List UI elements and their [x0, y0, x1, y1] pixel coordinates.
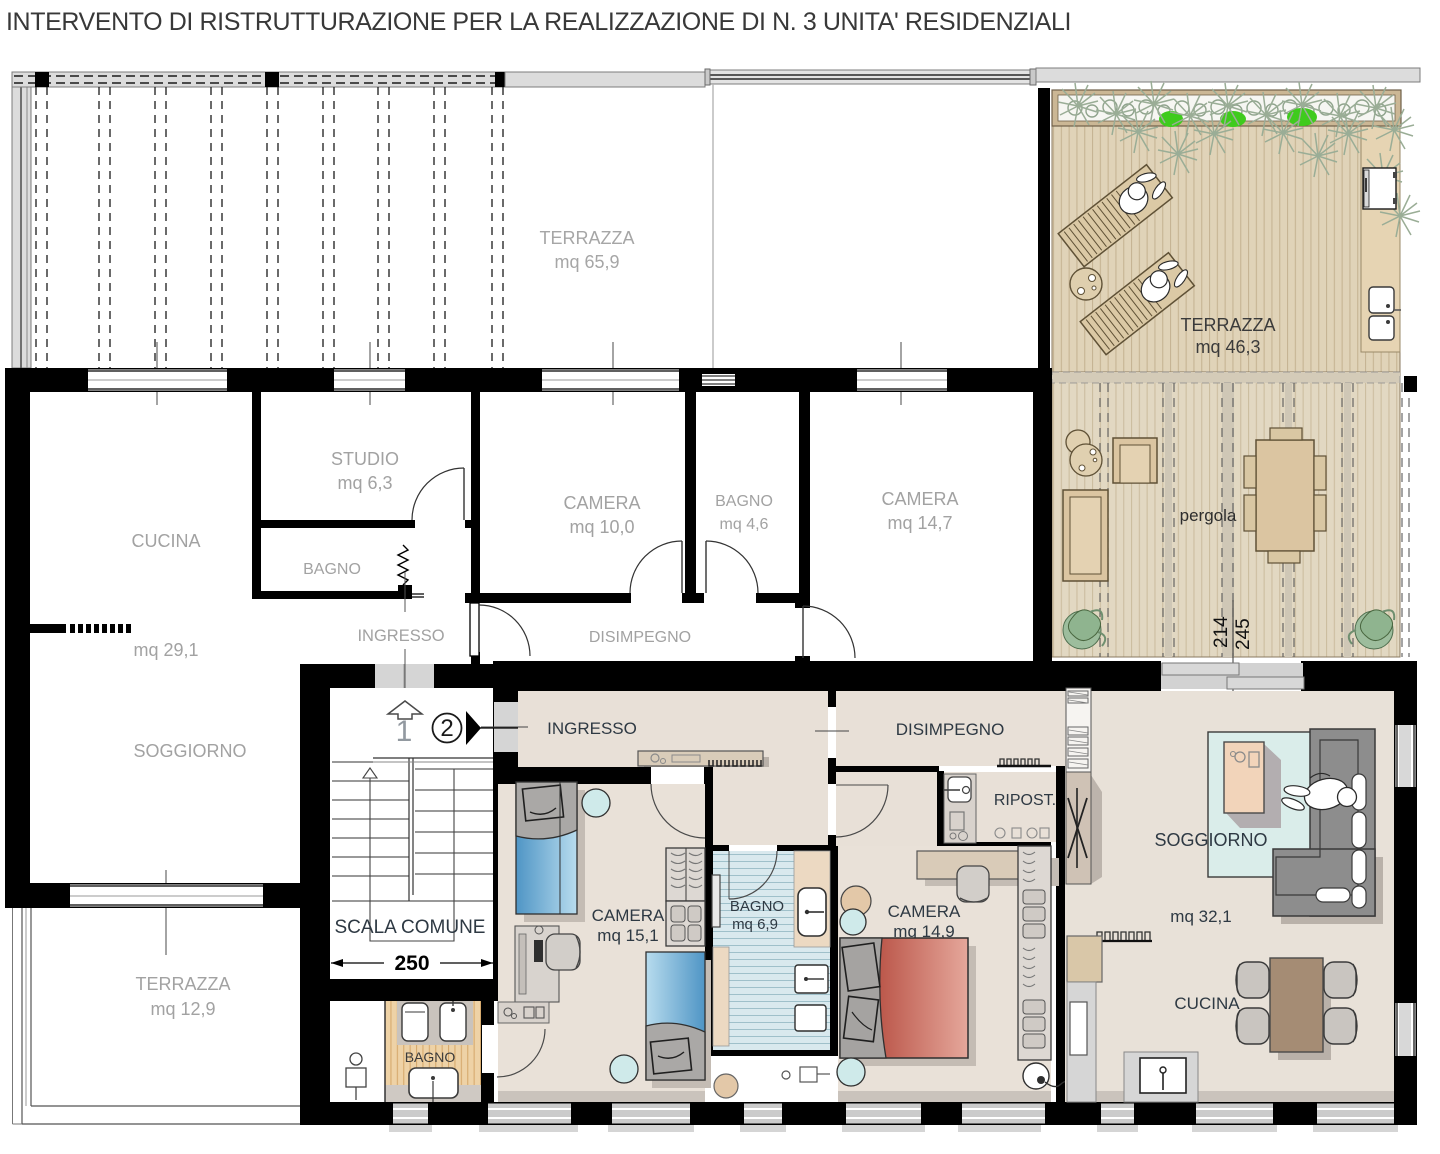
svg-text:BAGNO: BAGNO	[730, 898, 784, 915]
svg-text:mq 15,1: mq 15,1	[597, 926, 658, 945]
svg-text:mq 6,3: mq 6,3	[337, 473, 392, 493]
svg-text:BAGNO: BAGNO	[405, 1049, 456, 1065]
svg-text:2: 2	[440, 715, 453, 742]
svg-text:mq 46,3: mq 46,3	[1195, 337, 1260, 357]
svg-text:CAMERA: CAMERA	[888, 902, 961, 921]
svg-text:INGRESSO: INGRESSO	[357, 627, 444, 645]
svg-text:INTERVENTO DI RISTRUTTURAZIONE: INTERVENTO DI RISTRUTTURAZIONE PER LA RE…	[6, 8, 1071, 36]
svg-text:SOGGIORNO: SOGGIORNO	[1154, 830, 1267, 850]
svg-text:DISIMPEGNO: DISIMPEGNO	[589, 629, 691, 646]
svg-text:250: 250	[394, 952, 429, 975]
svg-text:CAMERA: CAMERA	[592, 906, 665, 925]
svg-text:STUDIO: STUDIO	[331, 449, 399, 469]
svg-text:TERRAZZA: TERRAZZA	[135, 974, 230, 994]
svg-text:245: 245	[1233, 618, 1254, 650]
svg-text:DISIMPEGNO: DISIMPEGNO	[896, 720, 1005, 739]
svg-text:INGRESSO: INGRESSO	[547, 719, 637, 738]
svg-text:SCALA COMUNE: SCALA COMUNE	[335, 917, 486, 938]
svg-text:mq 65,9: mq 65,9	[554, 252, 619, 272]
svg-text:RIPOST.: RIPOST.	[994, 792, 1056, 809]
svg-text:CAMERA: CAMERA	[881, 489, 958, 509]
svg-text:214: 214	[1211, 616, 1232, 648]
svg-text:SOGGIORNO: SOGGIORNO	[133, 741, 246, 761]
svg-text:mq 6,9: mq 6,9	[732, 916, 778, 933]
svg-text:mq 29,1: mq 29,1	[133, 640, 198, 660]
svg-text:BAGNO: BAGNO	[715, 493, 773, 510]
svg-text:pergola: pergola	[1180, 506, 1237, 525]
svg-text:mq 4,6: mq 4,6	[720, 516, 769, 533]
svg-text:TERRAZZA: TERRAZZA	[539, 228, 634, 248]
svg-text:CUCINA: CUCINA	[131, 531, 200, 551]
svg-text:CUCINA: CUCINA	[1174, 994, 1240, 1013]
svg-text:mq 32,1: mq 32,1	[1170, 907, 1231, 926]
svg-text:CAMERA: CAMERA	[563, 493, 640, 513]
svg-text:TERRAZZA: TERRAZZA	[1180, 315, 1275, 335]
svg-text:mq 10,0: mq 10,0	[569, 517, 634, 537]
svg-text:mq 12,9: mq 12,9	[150, 999, 215, 1019]
svg-text:mq 14,7: mq 14,7	[887, 513, 952, 533]
svg-text:1: 1	[396, 715, 413, 748]
svg-text:BAGNO: BAGNO	[303, 561, 361, 578]
